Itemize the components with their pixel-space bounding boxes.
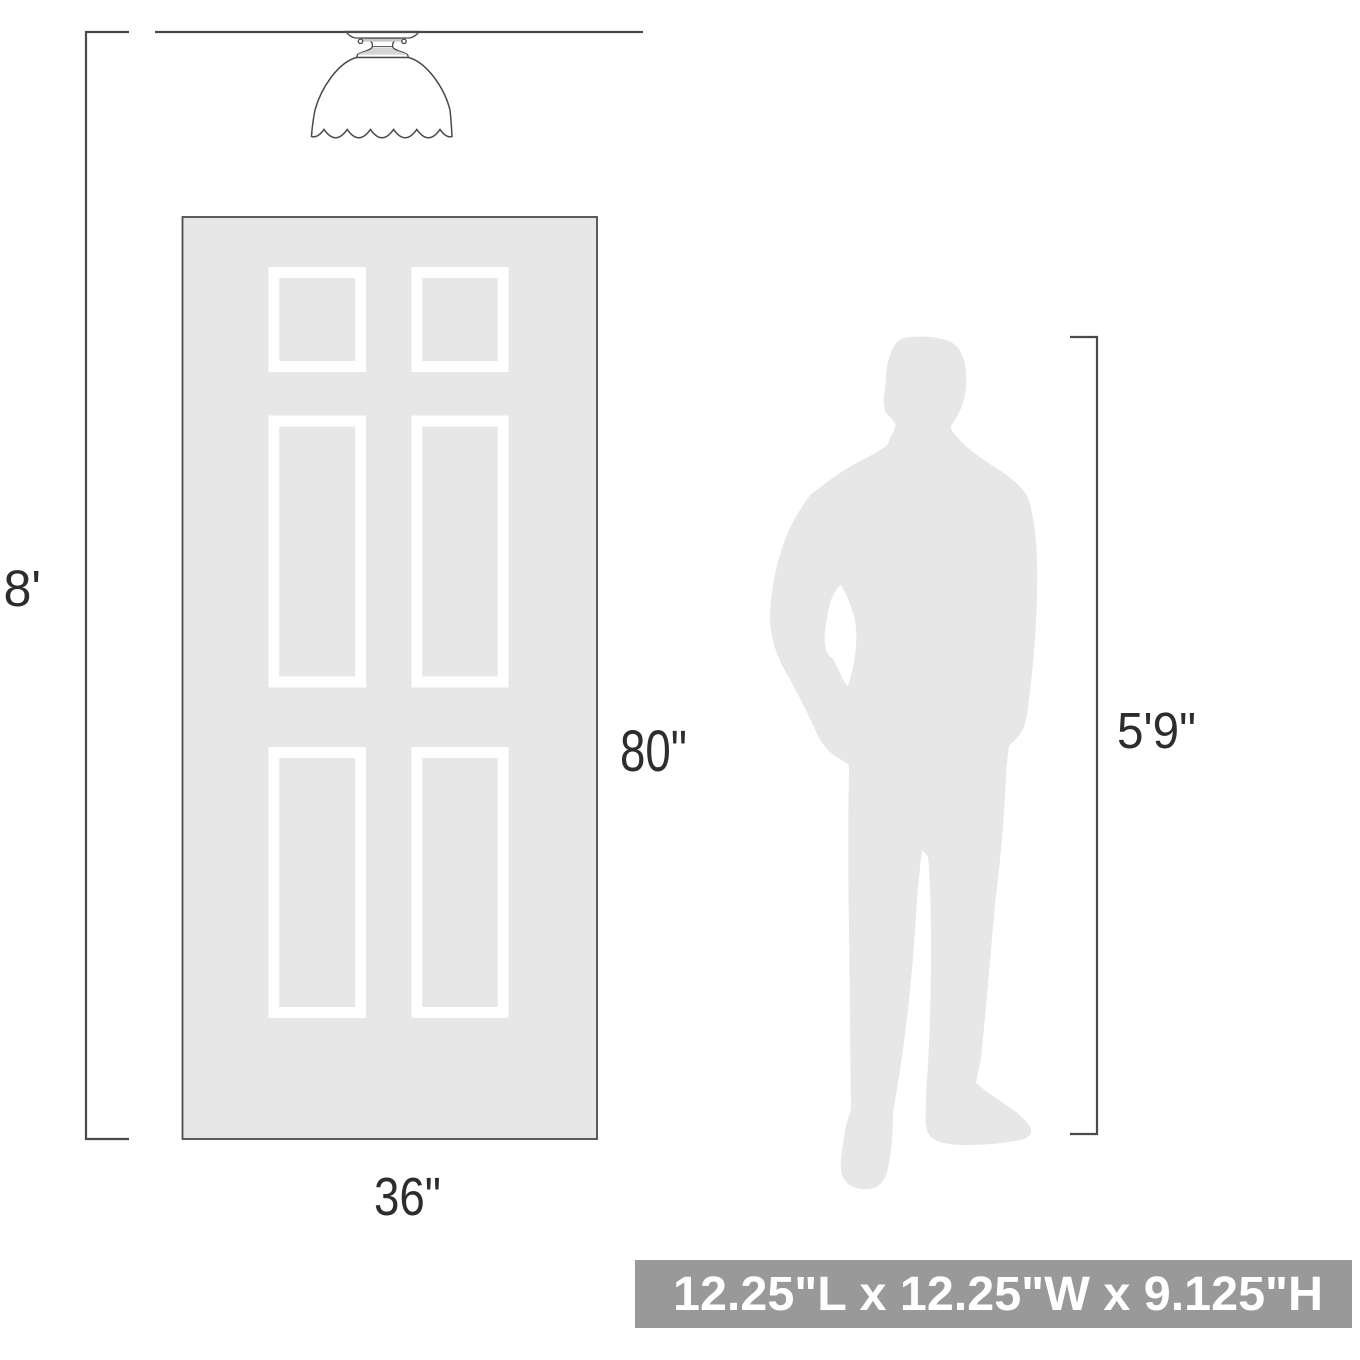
svg-text:5'9": 5'9" [1117, 702, 1196, 759]
svg-text:36": 36" [374, 1167, 441, 1227]
svg-text:80": 80" [620, 719, 687, 784]
svg-text:8': 8' [4, 560, 42, 617]
svg-text:12.25"L x 12.25"W x 9.125"H: 12.25"L x 12.25"W x 9.125"H [673, 1268, 1323, 1321]
